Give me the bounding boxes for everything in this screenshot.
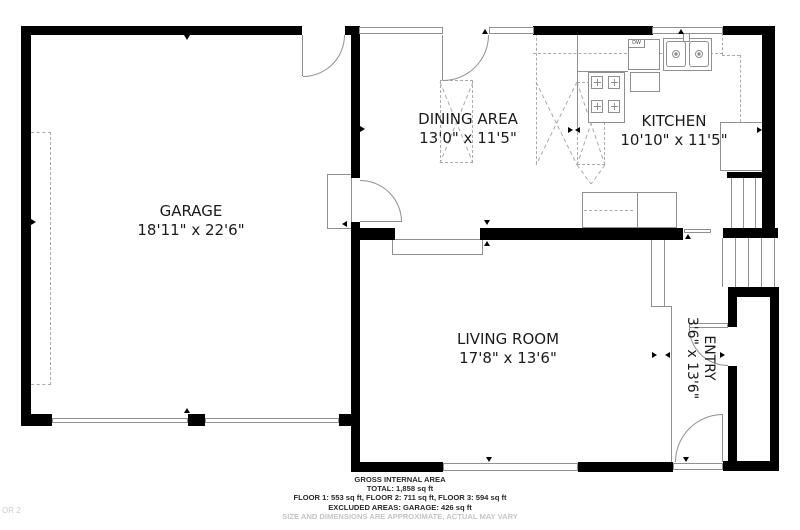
stairs-tread <box>748 238 749 287</box>
window <box>652 27 723 34</box>
room-dims: 3'6" x 13'6" <box>683 298 700 418</box>
stairs-tread <box>743 178 744 228</box>
garage-door <box>205 418 339 423</box>
room-name: LIVING ROOM <box>408 330 608 349</box>
entry-boundary-line <box>671 306 672 462</box>
room-label-living: LIVING ROOM 17'8" x 13'6" <box>408 330 608 368</box>
cabinet <box>630 72 660 92</box>
room-label-kitchen: KITCHEN 10'10" x 11'5" <box>574 112 774 150</box>
room-label-dining: DINING AREA 13'0" x 11'5" <box>368 110 568 148</box>
room-label-entry: ENTRY 3'6" x 13'6" <box>683 298 717 418</box>
room-label-garage: GARAGE 18'11" x 22'6" <box>91 202 291 240</box>
entry-boundary-line <box>664 238 665 306</box>
wall-segment <box>723 26 763 35</box>
dishwasher-label: DW <box>628 39 645 48</box>
room-dims: 17'8" x 13'6" <box>408 349 608 368</box>
tick-arrow <box>683 457 689 462</box>
sink-drain <box>695 50 703 58</box>
wall-segment <box>21 414 52 426</box>
burner <box>608 76 620 89</box>
tick-arrow <box>652 352 657 358</box>
tick-arrow <box>685 234 691 239</box>
wall-segment <box>770 287 779 470</box>
tick-arrow <box>678 29 684 34</box>
tick-arrow <box>184 35 190 40</box>
stairs-exterior-edge <box>722 238 723 287</box>
faucet <box>683 33 690 42</box>
door-threshold <box>673 463 723 470</box>
room-name: KITCHEN <box>574 112 774 131</box>
wall-segment <box>188 414 205 426</box>
tick-arrow <box>486 457 492 462</box>
tick-arrow <box>31 219 36 225</box>
stairs-tread <box>761 238 762 287</box>
stairs-tread <box>731 178 732 228</box>
wall-segment <box>21 26 302 35</box>
tick-arrow <box>720 352 725 358</box>
tick-arrow <box>665 352 670 358</box>
wall-segment <box>480 228 683 240</box>
wall-segment <box>351 26 360 178</box>
burner <box>591 76 603 89</box>
pass-through-shelf <box>684 229 711 233</box>
stairs-tread <box>755 178 756 228</box>
kitchen-peninsula-divider <box>637 193 638 227</box>
kitchen-peninsula-dash <box>584 210 633 211</box>
room-dims: 18'11" x 22'6" <box>91 221 291 240</box>
total-area: TOTAL: 1,858 sq ft <box>0 484 800 493</box>
tick-arrow <box>184 408 190 413</box>
stairs-tread <box>735 238 736 287</box>
tick-arrow <box>484 241 490 246</box>
disclaimer: SIZE AND DIMENSIONS ARE APPROXIMATE, ACT… <box>0 512 800 521</box>
wall-segment <box>728 287 737 327</box>
floor-areas: FLOOR 1: 553 sq ft, FLOOR 2: 711 sq ft, … <box>0 493 800 502</box>
wall-segment <box>723 228 778 238</box>
sink-drain <box>672 50 680 58</box>
console-cabinet <box>392 239 483 255</box>
tick-arrow <box>484 220 490 225</box>
gross-area-title: GROSS INTERNAL AREA <box>0 475 800 484</box>
room-dims: 10'10" x 11'5" <box>574 131 774 150</box>
entry-boundary-line <box>651 306 672 307</box>
wall-segment <box>578 462 673 472</box>
tick-arrow <box>568 127 573 133</box>
area-summary: GROSS INTERNAL AREA TOTAL: 1,858 sq ft F… <box>0 475 800 521</box>
room-name: GARAGE <box>91 202 291 221</box>
tick-arrow <box>482 29 488 34</box>
room-dims: 13'0" x 11'5" <box>368 129 568 148</box>
window <box>359 27 443 34</box>
wall-segment <box>727 172 763 178</box>
wall-segment <box>339 414 360 426</box>
wall-segment <box>360 228 395 240</box>
garage-door <box>52 418 188 423</box>
window <box>489 27 534 34</box>
stairs-exterior-edge <box>774 238 775 287</box>
room-name: DINING AREA <box>368 110 568 129</box>
window <box>443 463 578 471</box>
door-jamb <box>327 174 352 229</box>
room-name: ENTRY <box>700 298 717 418</box>
tick-arrow <box>360 126 365 132</box>
excluded-areas: EXCLUDED AREAS: GARAGE: 426 sq ft <box>0 503 800 512</box>
floor-watermark: OR 2 <box>2 506 21 515</box>
wall-segment <box>21 26 31 425</box>
tick-arrow <box>342 221 347 227</box>
wall-segment <box>533 26 653 35</box>
wall-segment <box>351 222 360 470</box>
wall-segment <box>351 462 443 472</box>
wall-segment <box>728 366 737 470</box>
entry-boundary-line <box>651 238 652 306</box>
floor-plan: DW GARAGE 18'11" x 22'6" DINING AREA 13'… <box>0 0 800 530</box>
